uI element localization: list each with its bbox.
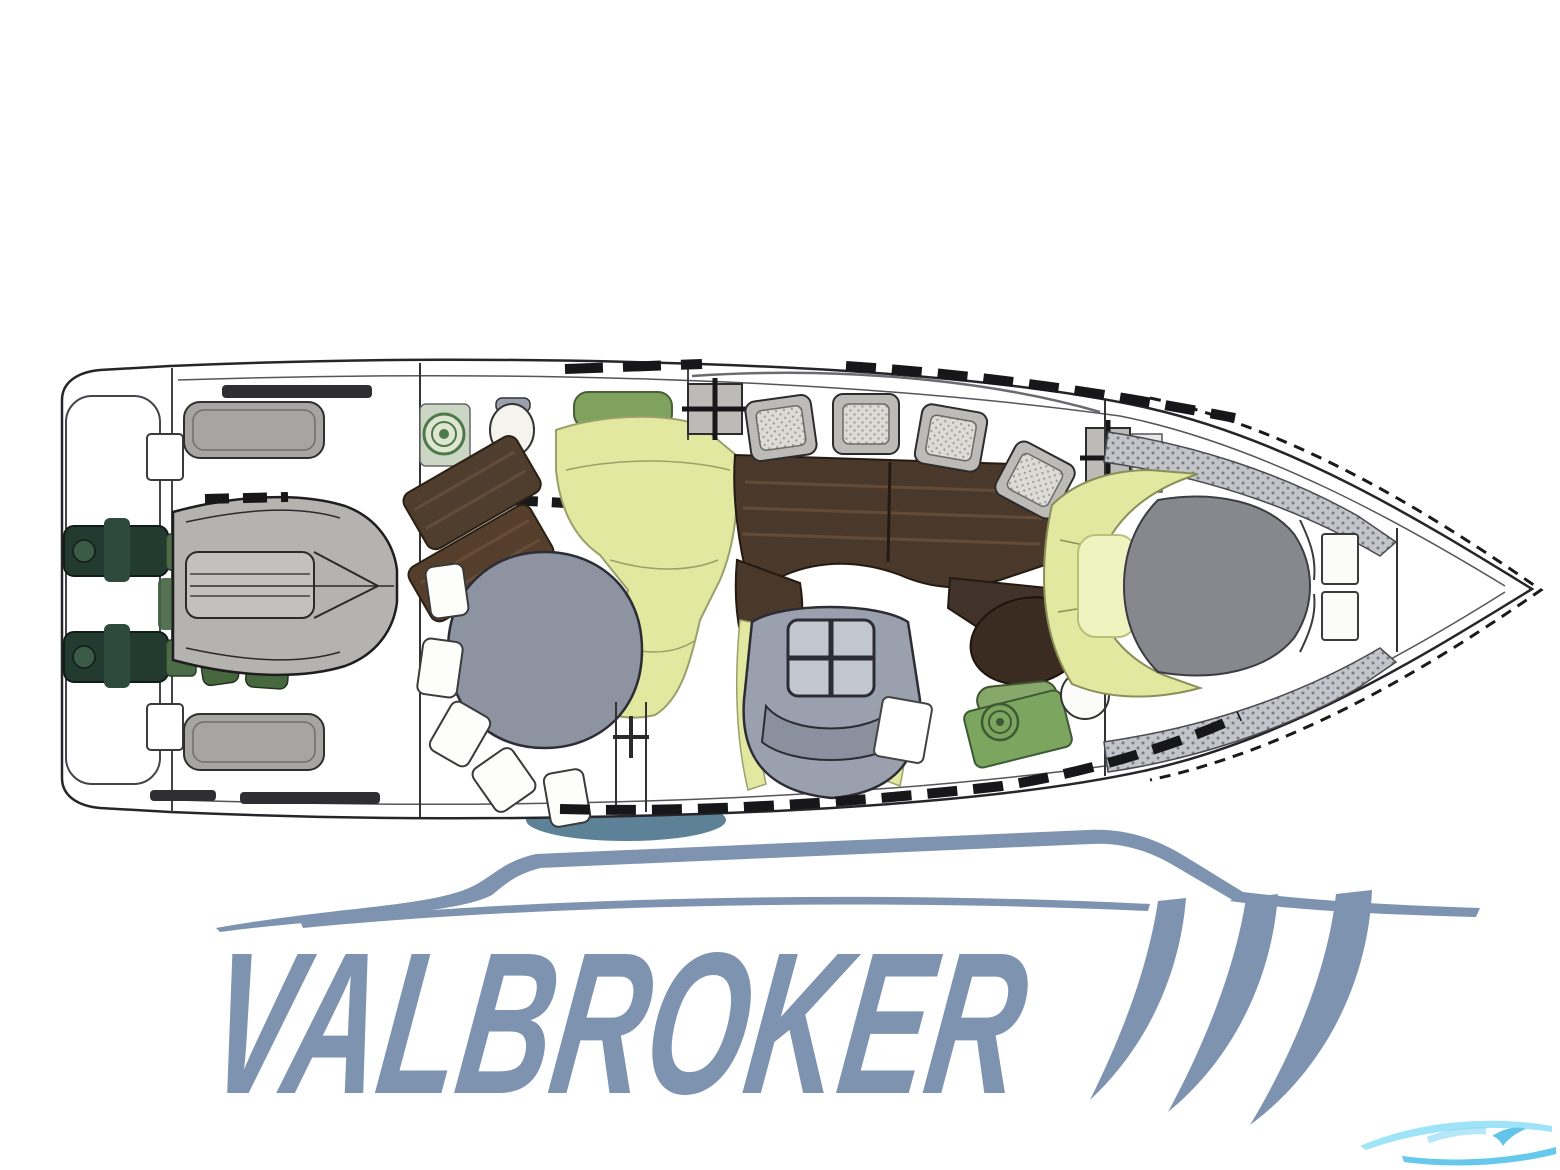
stern-bar-bottom <box>240 792 380 804</box>
valbroker-logo: VALBROKER <box>196 830 1480 1137</box>
galley-stove <box>420 404 470 466</box>
watermark-swoosh-icon <box>1360 1121 1556 1166</box>
stern-bar-bottom-left <box>150 790 216 801</box>
swim-platform <box>66 396 160 784</box>
stern-locker-top <box>147 434 183 480</box>
tender-dinghy <box>173 497 397 675</box>
stern-bench-top <box>184 402 324 458</box>
stern-bar-top <box>222 385 372 398</box>
boat-listing-image: VALBROKER <box>0 0 1560 1170</box>
bow-berth <box>1124 497 1310 676</box>
deck-plan <box>62 360 1541 841</box>
deck-hatch-cross <box>682 378 748 440</box>
stern-bench-bottom <box>184 714 324 770</box>
stern-locker-bottom <box>147 704 183 750</box>
speed-strokes-icon <box>1090 890 1372 1125</box>
logo-wordmark: VALBROKER <box>196 911 1040 1137</box>
deck-plan-canvas: VALBROKER <box>0 0 1560 1170</box>
step-unit <box>873 696 933 764</box>
